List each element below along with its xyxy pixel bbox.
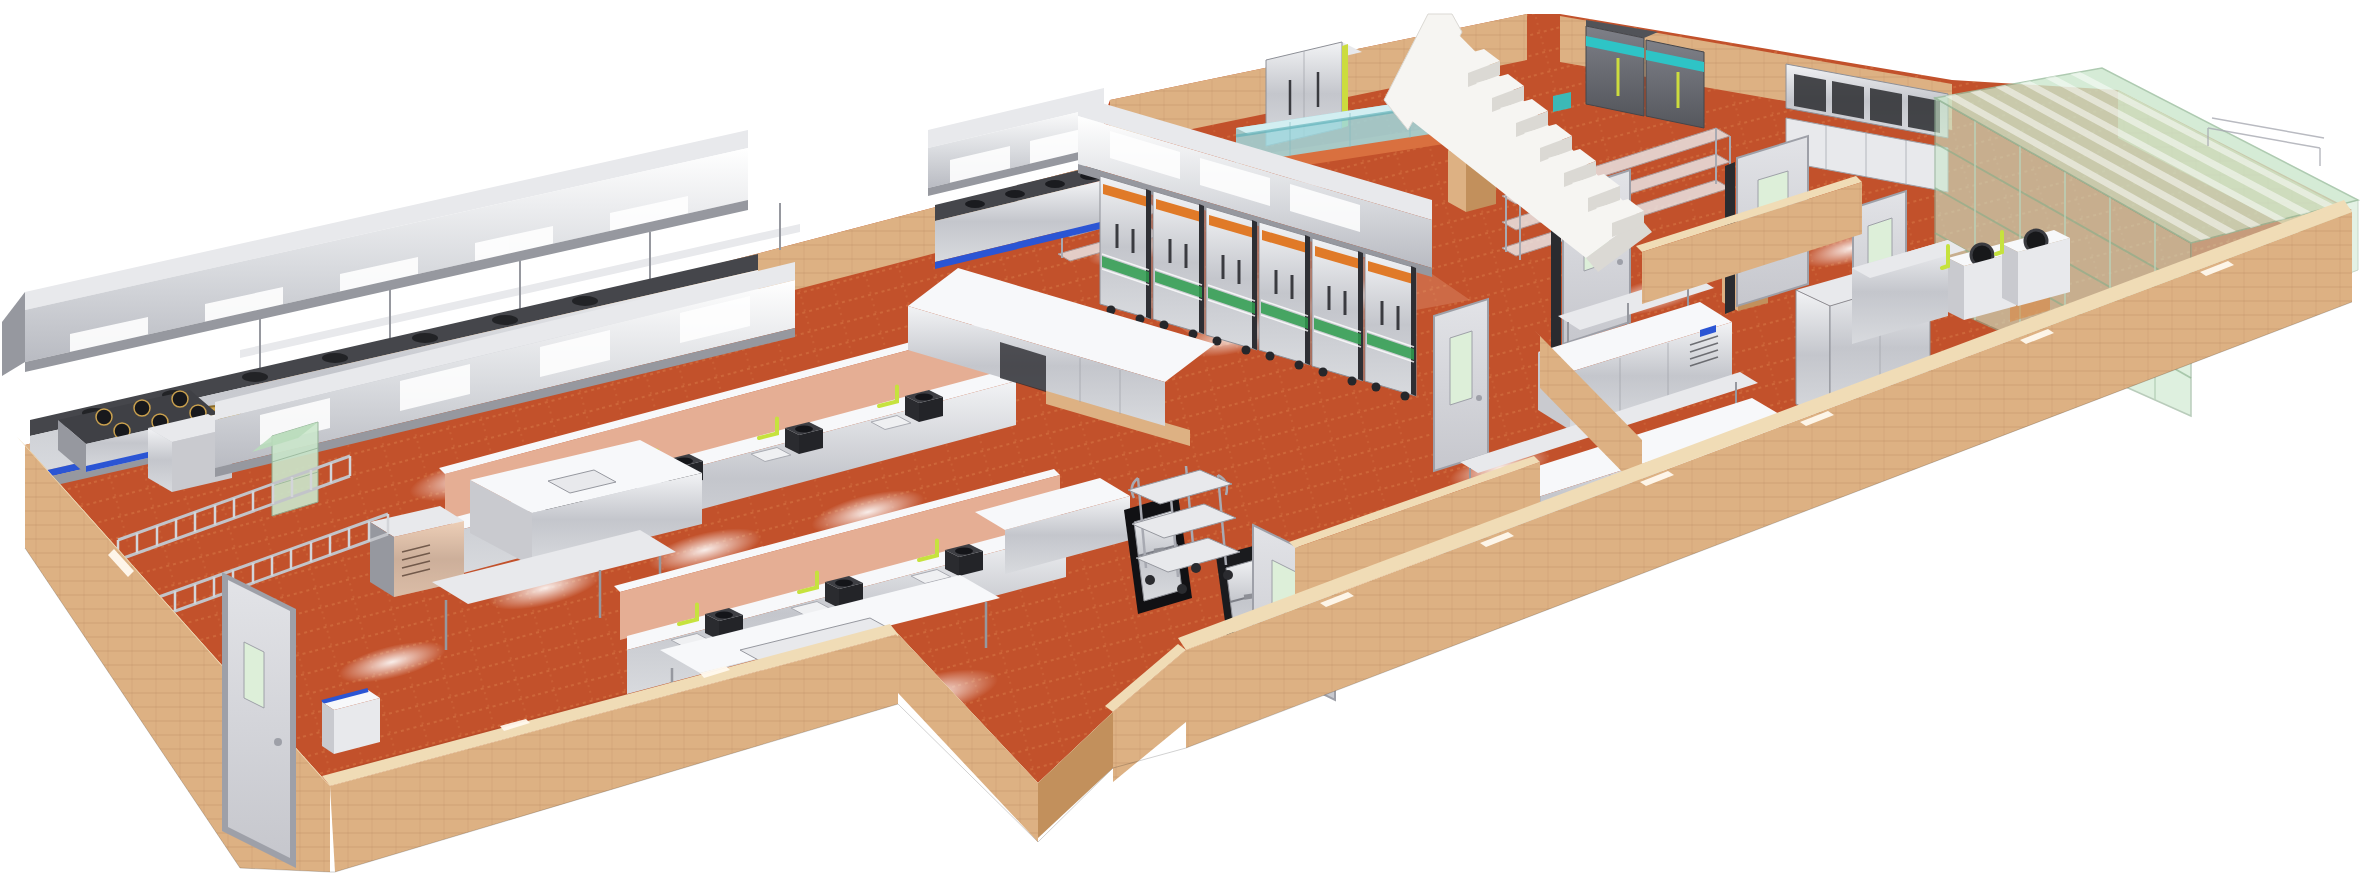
kitchen-3d-render bbox=[0, 0, 2368, 880]
exterior-door bbox=[222, 572, 296, 868]
interior-door-6 bbox=[1434, 299, 1488, 471]
render-canvas bbox=[0, 0, 2368, 880]
